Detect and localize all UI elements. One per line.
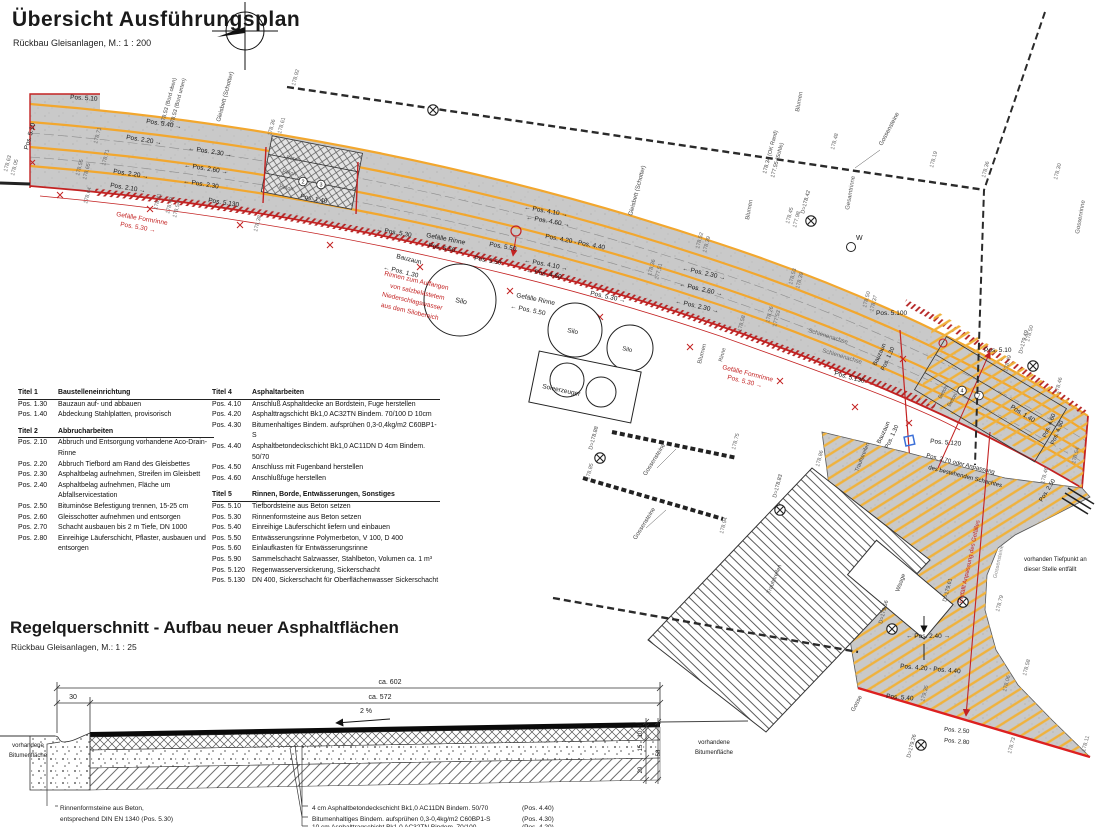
plan-label: Gossensteine xyxy=(878,111,901,147)
plan-label: vorhandene xyxy=(12,743,44,749)
plan-label: 3 xyxy=(319,183,322,189)
drawing-sheet: Übersicht Ausführungsplan Rückbau Gleisa… xyxy=(0,0,1096,827)
plan-label: Rinne xyxy=(718,347,728,362)
plan-label: W xyxy=(856,235,863,242)
plan-label: Bitumenfläche xyxy=(9,753,48,759)
drain-symbol xyxy=(1028,361,1038,371)
gossensteine-strip xyxy=(612,432,737,458)
plan-label: Pos. 2.50 xyxy=(944,727,970,735)
utility-symbol xyxy=(847,243,856,252)
drain-symbol xyxy=(806,216,816,226)
plan-drawing: Pos. 5.10Pos. 5.10Pos. 5.40 →Pos. 2.20 →… xyxy=(0,0,1096,827)
drain-symbol xyxy=(595,453,605,463)
plan-label: D=178.88 xyxy=(588,426,600,451)
plan-label: 2 % xyxy=(360,708,372,715)
plan-label: Pos. 5.100 xyxy=(876,310,907,317)
plan-label: 58 xyxy=(656,749,662,756)
plan-label: 30 xyxy=(69,694,77,701)
plan-label: Gosse xyxy=(850,694,864,713)
track-band xyxy=(30,94,1088,488)
plan-label: 178.92 xyxy=(291,69,301,87)
slope-arrow xyxy=(336,719,390,723)
plan-label: ca. 572 xyxy=(369,694,392,701)
plan-label: 178.85 xyxy=(585,463,595,481)
plan-label: Gleisbett (Schotter) xyxy=(216,71,235,122)
plan-label: Gossenrinne xyxy=(1075,199,1087,234)
plan-label: ← Pos. 5.50 xyxy=(510,303,547,317)
plan-label: 29 xyxy=(638,766,644,773)
plan-label: D=178.42 xyxy=(800,190,812,215)
plan-label: Pos. 5.120 xyxy=(930,438,962,448)
plan-label: Blumen xyxy=(745,199,754,220)
plan-label: Gossensteine xyxy=(643,442,668,477)
plan-label: 178.86 xyxy=(815,450,825,468)
north-arrow-icon xyxy=(212,2,278,70)
drain-symbol xyxy=(916,740,926,750)
plan-label: 178.11 xyxy=(1081,735,1091,752)
sickerschacht-symbol xyxy=(904,435,915,446)
plan-label: Gossensteine xyxy=(633,506,658,541)
plan-label: Pos. 2.80 xyxy=(944,738,970,746)
plan-label: D=178.83 xyxy=(772,474,784,499)
plan-label: 178.46 xyxy=(1054,377,1064,395)
plan-label: Pos. 5.10 xyxy=(984,347,1012,354)
plan-label: Gleisbett (Schotter) xyxy=(628,165,647,216)
plan-label: 15 xyxy=(638,744,644,751)
plan-label: 178.73 xyxy=(1007,737,1017,755)
plan-label: (Pos. 4.40) xyxy=(522,805,554,812)
plan-label: vorhanden Tiefpunkt an xyxy=(1024,557,1087,563)
plan-label: 178.38 xyxy=(253,215,263,233)
existing-surface-right xyxy=(660,721,748,722)
plan-label: (Pos. 4.30) xyxy=(522,816,554,823)
plan-label: 2 xyxy=(301,180,304,186)
plan-label: 178.30 xyxy=(1053,163,1063,181)
plan-label: entsprechend DIN EN 1340 (Pos. 5.30) xyxy=(60,816,173,823)
plan-label: Rinnenformsteine aus Beton, xyxy=(60,805,144,812)
plan-label: 178.36 xyxy=(981,161,991,179)
plan-label: 178.75 xyxy=(731,433,741,451)
plan-label: ca. 602 xyxy=(379,679,402,686)
plan-label: vorhandene xyxy=(698,740,730,746)
plan-label: 178.58 xyxy=(1022,659,1032,677)
plan-label: 7 xyxy=(977,394,980,400)
plan-label: Pos. 5.40 xyxy=(886,693,914,702)
plan-label: Gesamtrinne xyxy=(845,175,857,211)
plan-label: Bauzaun xyxy=(396,253,423,266)
plan-label: 4 cm Asphaltbetondeckschicht Bk1,0 AC11D… xyxy=(312,805,489,812)
plan-label: 178.48 xyxy=(830,133,840,151)
plan-label: 178.61 xyxy=(277,117,287,135)
plan-label: 178.19 xyxy=(929,151,939,169)
plan-label: Blumen xyxy=(795,91,804,112)
plan-label: 178.79 xyxy=(995,595,1005,613)
plan-label: 178.50 xyxy=(1025,325,1035,343)
plan-label: 178.94 xyxy=(719,517,729,535)
plan-label: 4 xyxy=(960,389,963,395)
plan-label: Bitumenfläche xyxy=(695,750,734,756)
plan-label: 10 xyxy=(638,730,644,737)
plan-label: Blumen xyxy=(697,343,708,364)
drain-symbol xyxy=(428,105,438,115)
plan-label: dieser Stelle entfällt xyxy=(1024,567,1077,573)
plan-label: Bitumenhaltiges Bindem. aufsprühen 0,3-0… xyxy=(312,816,491,823)
existing-pavement-left xyxy=(0,733,90,790)
drain-symbol xyxy=(887,624,897,634)
plan-label: ← Pos. 2.40 → xyxy=(906,633,950,640)
drain-symbol xyxy=(775,505,785,515)
